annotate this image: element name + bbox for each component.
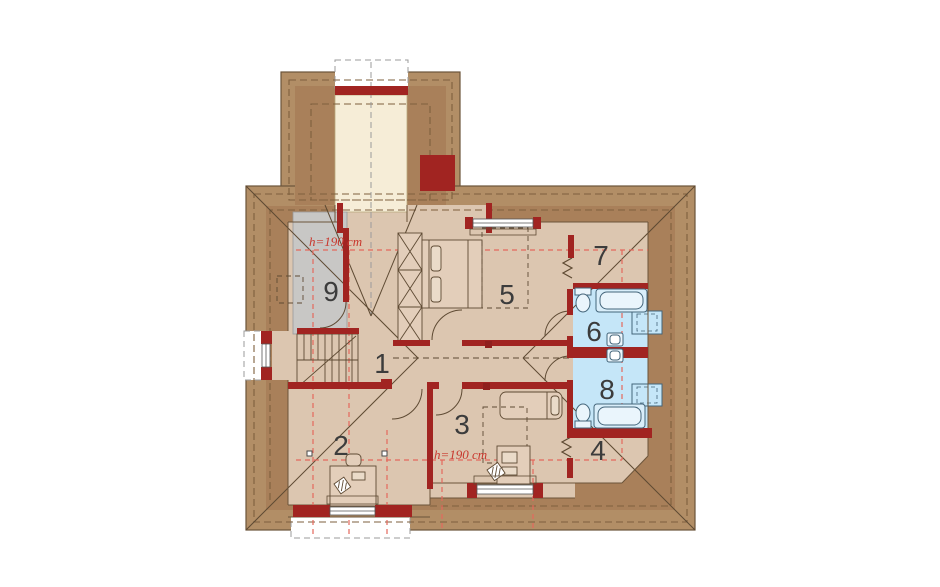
closet-room5 <box>398 233 422 343</box>
room-label-4: 4 <box>590 435 606 466</box>
height-annotation-bottom: h=190 cm <box>434 447 487 462</box>
bed-room3 <box>500 392 562 419</box>
room-label-7: 7 <box>593 240 609 271</box>
bathtub-bathroom8 <box>594 404 645 428</box>
toilet-bathroom6 <box>575 288 591 312</box>
bed-room5 <box>422 240 482 308</box>
floor-plan-page: 1 2 3 4 5 6 7 8 9 h=190 cm h=190 cm <box>0 0 940 587</box>
room-label-3: 3 <box>454 409 470 440</box>
bathtub-bathroom6 <box>596 289 647 312</box>
room-label-5: 5 <box>499 279 515 310</box>
chimney <box>420 155 455 191</box>
room-label-6: 6 <box>586 316 602 347</box>
room-label-8: 8 <box>599 374 615 405</box>
room-label-1: 1 <box>374 348 390 379</box>
toilet-bathroom8 <box>575 404 591 428</box>
dormer-front-wall <box>335 86 408 95</box>
room-label-2: 2 <box>333 430 349 461</box>
floor-plan: 1 2 3 4 5 6 7 8 9 h=190 cm h=190 cm <box>0 0 940 587</box>
height-annotation-top: h=190 cm <box>309 234 362 249</box>
balcony-outline <box>291 517 410 538</box>
room-label-9: 9 <box>323 276 339 307</box>
